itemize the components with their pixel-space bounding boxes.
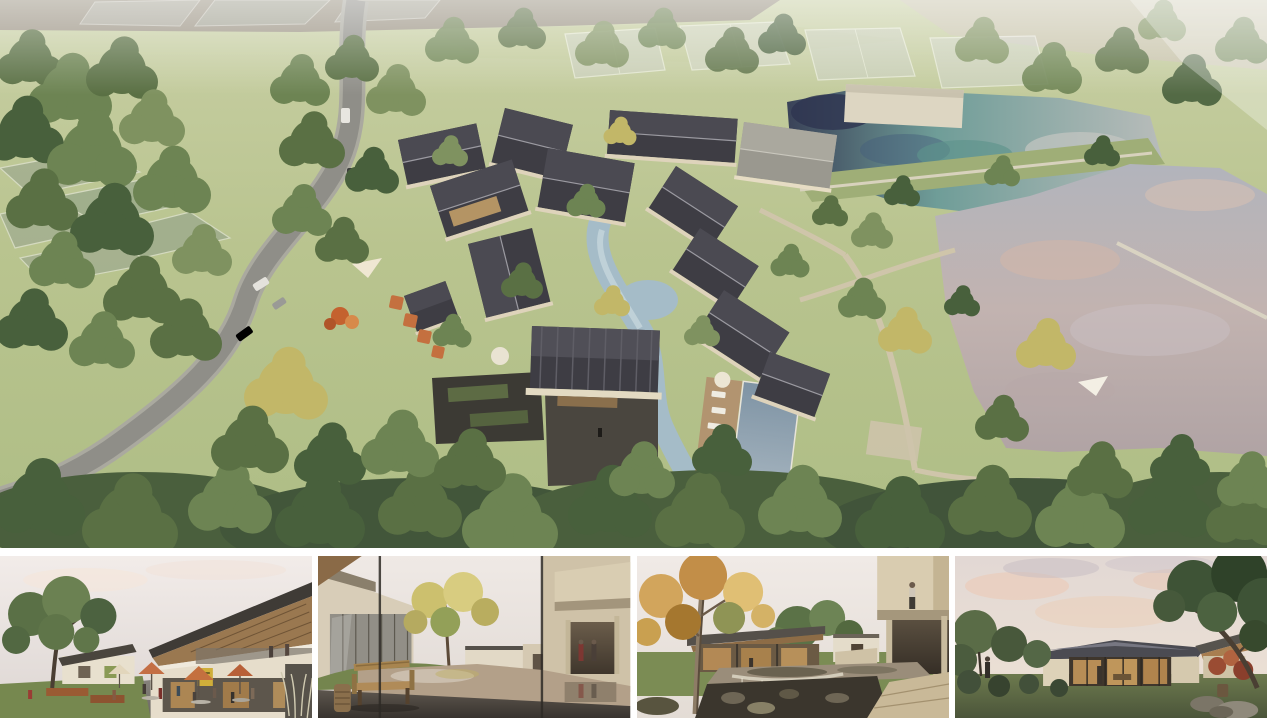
courtyard-pond-image [318,556,630,718]
person [269,646,273,659]
top-haze [0,0,1267,95]
corten-planter [90,695,124,703]
autumn-courtyard-panel [637,556,949,718]
person-on-roof [909,582,915,609]
person [598,428,602,437]
window-mullion [379,556,381,718]
dusk-pavilion-image [955,556,1267,718]
window-mullion [541,556,543,718]
rendering-collage: .t1{fill:#5a7044}.t2{fill:#6d8453}.t3{fi… [0,0,1267,724]
carved-stool [334,684,351,712]
tree-stump [1217,684,1228,697]
street-rendering-panel [0,556,312,718]
interior-furniture [1113,674,1131,680]
lakeside-patio [866,421,922,462]
person [1097,666,1102,684]
terrace-umbrella [491,347,509,365]
person-walking [985,656,990,678]
thumbnail-row [0,556,1267,718]
child [28,690,32,699]
corten-planter [46,688,88,696]
right-building [543,556,631,692]
street-rendering-image [0,556,312,718]
person-red-coat [579,644,584,661]
courtyard-pond-panel [318,556,630,718]
dusk-pavilion-panel [955,556,1267,718]
aerial-masterplan-image: .t1{fill:#5a7044}.t2{fill:#6d8453}.t3{fi… [0,0,1267,548]
person-dark-coat [592,644,597,661]
aerial-masterplan-panel: .t1{fill:#5a7044}.t2{fill:#6d8453}.t3{fi… [0,0,1267,548]
autumn-courtyard-image [637,556,949,718]
